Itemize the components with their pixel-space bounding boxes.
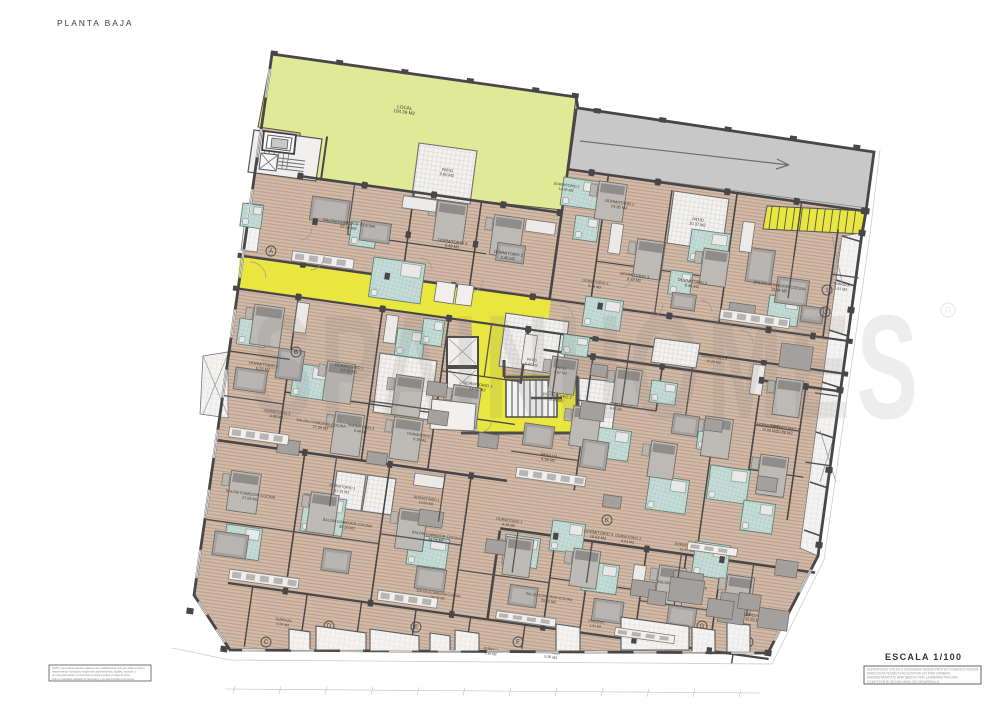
- svg-text:requerimiento municipal o exig: requerimiento municipal o exigencias adm…: [52, 670, 136, 674]
- svg-text:B: B: [294, 350, 298, 356]
- svg-text:K: K: [605, 518, 609, 524]
- svg-text:J: J: [824, 310, 827, 316]
- svg-text:E: E: [414, 625, 418, 631]
- svg-text:NOTA: Los cuadros quedan sujet: NOTA: Los cuadros quedan sujetos a las m…: [52, 666, 146, 670]
- svg-text:PLANTA BAJA: PLANTA BAJA: [57, 18, 134, 28]
- svg-text:A: A: [269, 249, 273, 255]
- svg-text:Todo el mobiliario reflejado e: Todo el mobiliario reflejado es decorati…: [52, 677, 135, 681]
- svg-text:de mera adecuacion constructiv: de mera adecuacion constructiva se deban…: [52, 673, 130, 677]
- svg-text:C: C: [264, 640, 269, 646]
- svg-text:F: F: [516, 640, 520, 646]
- svg-text:R: R: [944, 306, 951, 317]
- svg-text:ESCALA 1/100: ESCALA 1/100: [885, 652, 962, 662]
- svg-text:COMPETENTE SEGUN NIVEL DE DESA: COMPETENTE SEGUN NIVEL DE DESARROLLO: [867, 680, 940, 684]
